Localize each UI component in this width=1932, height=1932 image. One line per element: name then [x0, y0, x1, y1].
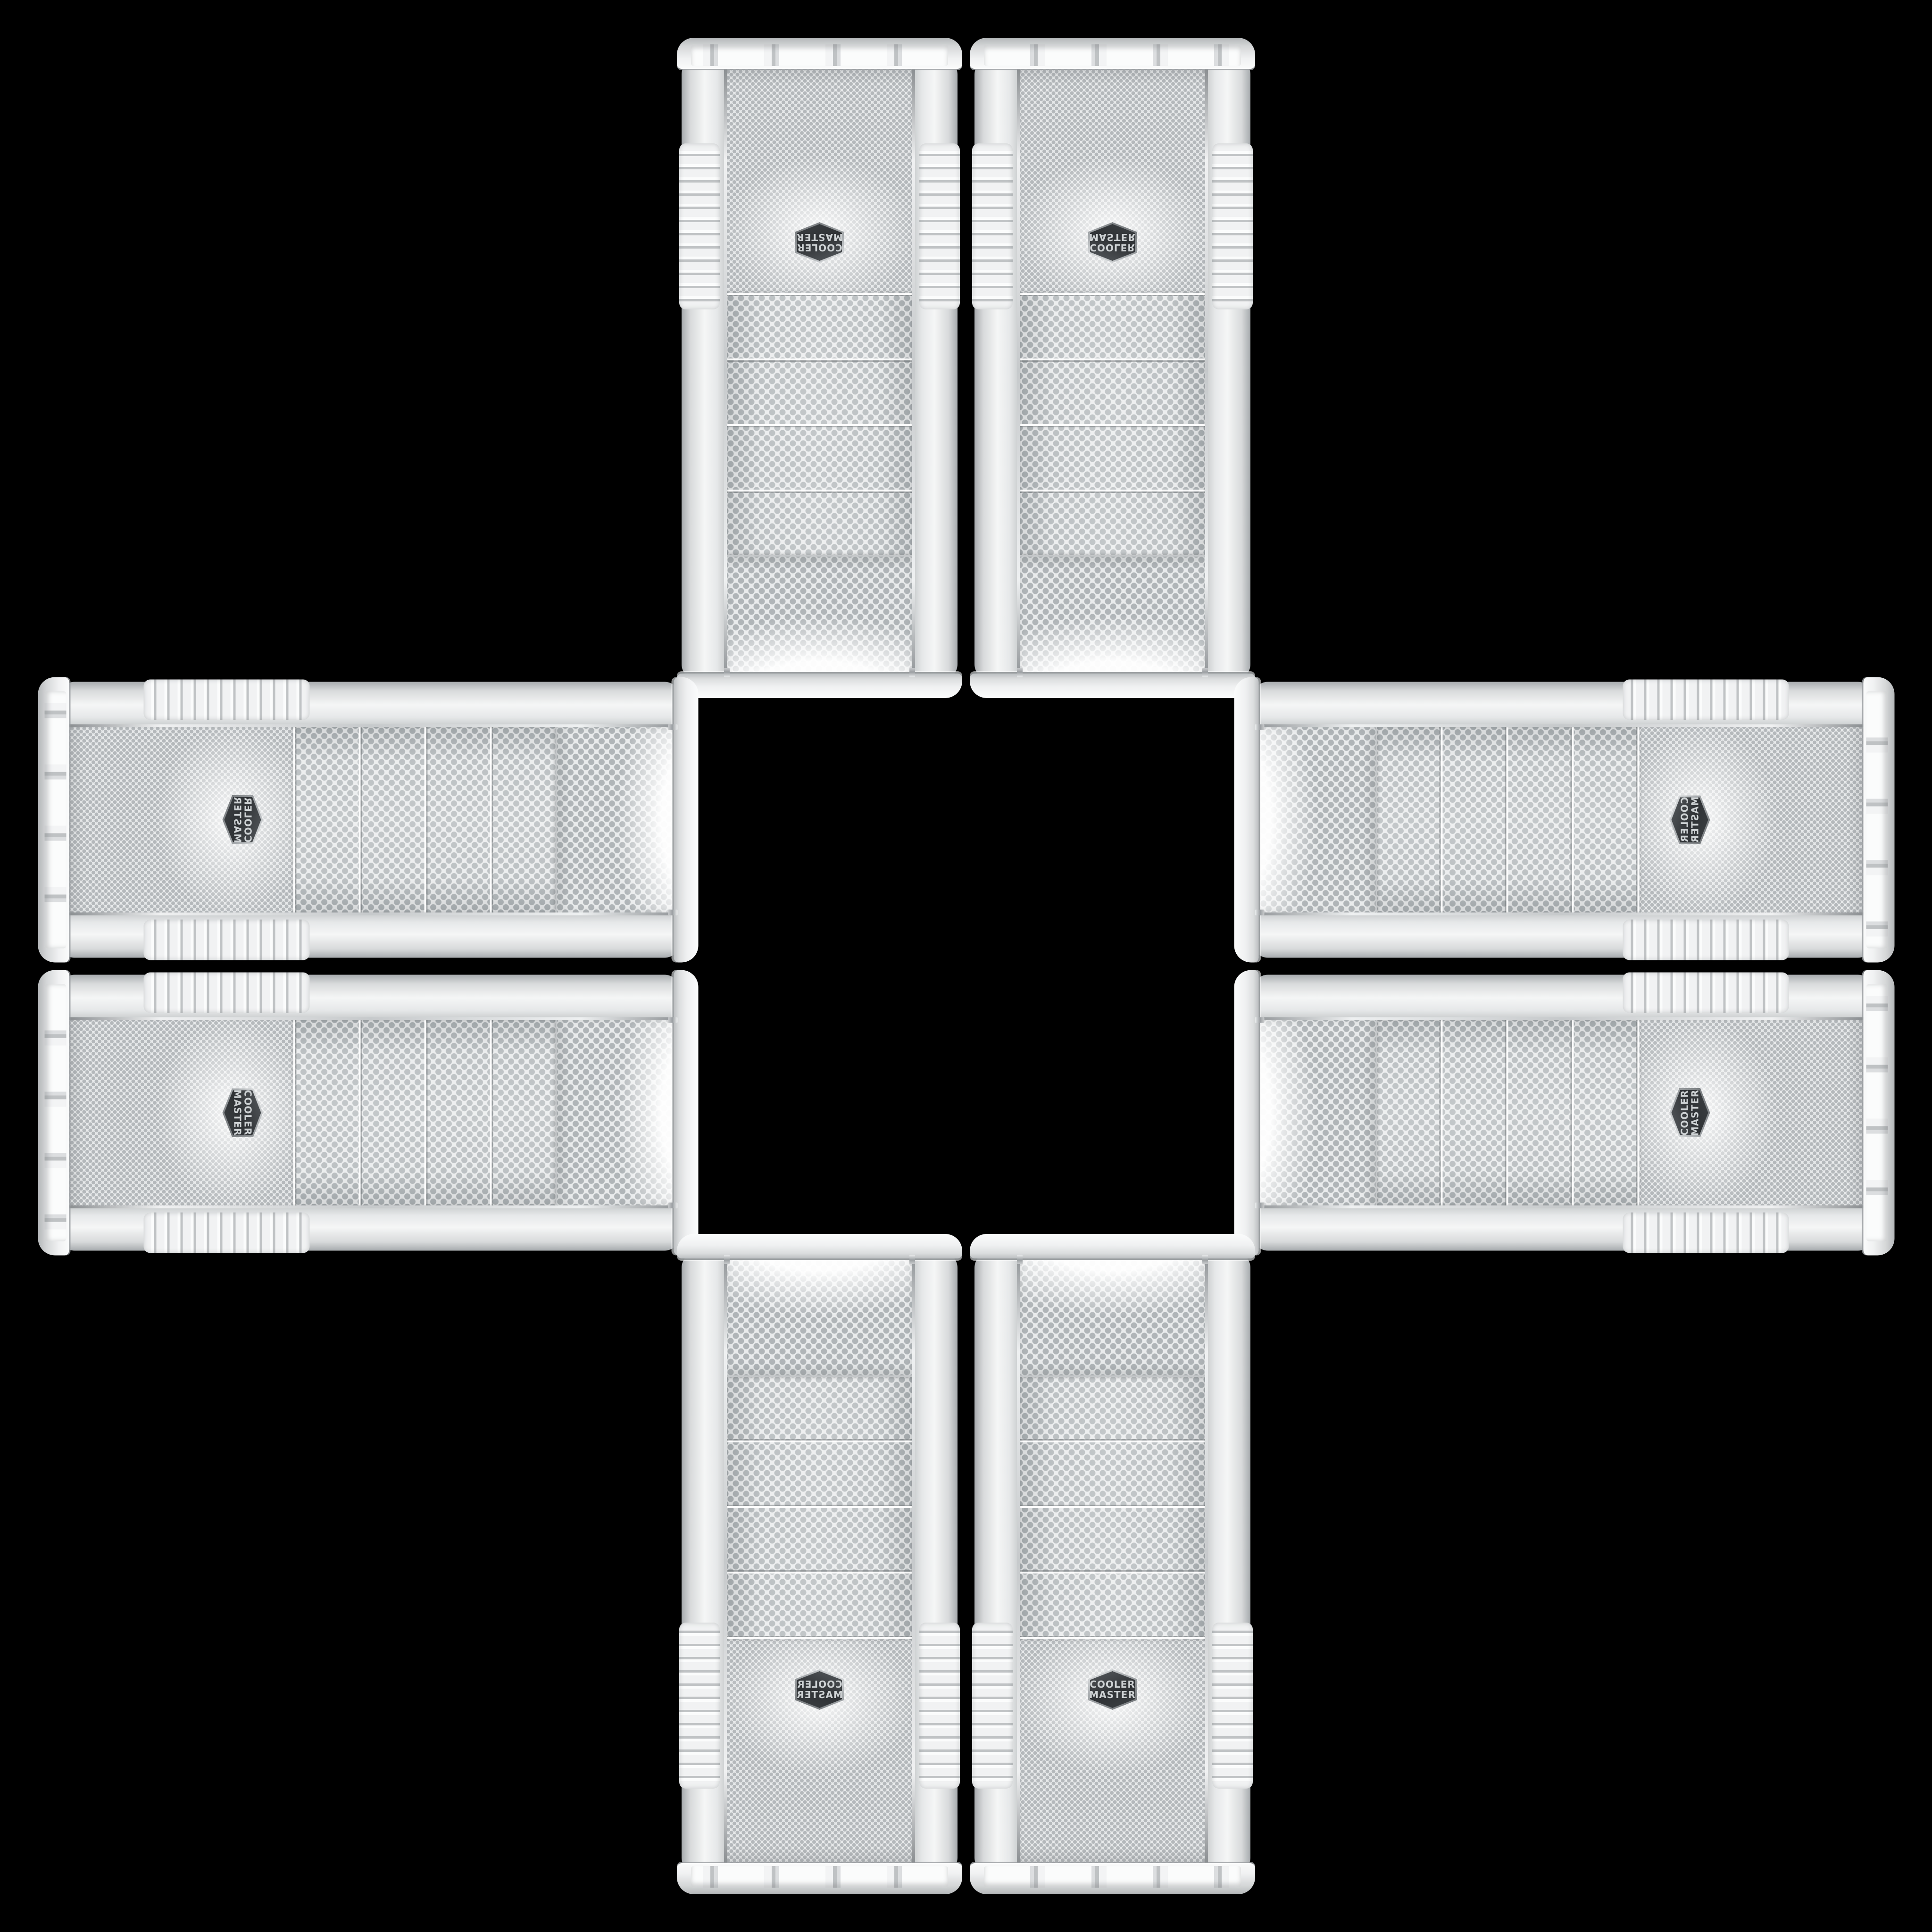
- case-grip-ribs-left: [1623, 679, 1789, 720]
- chrome-hook-right-icon: [668, 724, 677, 730]
- chrome-hook-right-icon: [724, 1255, 730, 1264]
- brand-text-line2: MASTER: [796, 1690, 843, 1700]
- drive-bay-covers: [1377, 727, 1640, 912]
- bottom-cap-segments: [1866, 984, 1888, 1241]
- case-bottom-left: COOLER MASTER: [682, 1234, 958, 1894]
- case-front-panel: COOLER MASTER: [1020, 61, 1205, 679]
- bottom-cap-segments: [44, 691, 66, 948]
- brand-text-line2: MASTER: [233, 1089, 242, 1136]
- brand-text-line2: MASTER: [1089, 1690, 1136, 1700]
- chrome-hook-right-icon: [1202, 1255, 1208, 1264]
- cooler-master-logo-badge: COOLER MASTER: [1669, 1088, 1710, 1137]
- front-mesh-dome: [555, 727, 679, 912]
- case-top-cap: [677, 674, 962, 698]
- case-front-panel: COOLER MASTER: [727, 1253, 912, 1871]
- cooler-master-logo-face: COOLER MASTER: [224, 1090, 261, 1135]
- case-top-left: COOLER MASTER: [682, 38, 958, 698]
- case-grip-ribs-right: [1623, 919, 1789, 960]
- drive-bay-covers: [727, 292, 912, 555]
- case-grip-ribs-right: [1212, 1623, 1253, 1789]
- brand-text-line1: COOLER: [1680, 797, 1690, 842]
- case-top-cap: [674, 677, 698, 962]
- chrome-hook-right-icon: [1202, 668, 1208, 677]
- case-grip-ribs-left: [1623, 1212, 1789, 1253]
- case-top-cap: [677, 1234, 962, 1258]
- drive-bay-covers: [292, 1020, 555, 1205]
- drive-bay-covers: [727, 1377, 912, 1640]
- brand-text-line2: MASTER: [796, 233, 843, 242]
- case-grip-ribs-left: [972, 1623, 1013, 1789]
- brand-text-line1: COOLER: [1090, 243, 1135, 253]
- case-front-panel: COOLER MASTER: [1253, 1020, 1871, 1205]
- case-bottom-cap: [677, 1863, 962, 1894]
- front-mesh-dome: [1253, 1020, 1377, 1205]
- case-bottom-cap: [970, 38, 1255, 69]
- brand-text-line2: MASTER: [1690, 796, 1700, 843]
- case-grip-ribs-left: [972, 143, 1013, 309]
- cooler-master-logo-face: COOLER MASTER: [1671, 797, 1708, 842]
- case-grip-ribs-left: [143, 972, 309, 1013]
- case-front-panel: COOLER MASTER: [61, 1020, 679, 1205]
- cooler-master-logo-badge: COOLER MASTER: [1669, 795, 1710, 844]
- case-top-cap: [1234, 970, 1258, 1255]
- brand-text-line2: MASTER: [233, 796, 242, 843]
- case-bottom-cap: [1863, 970, 1894, 1255]
- chrome-hook-left-icon: [1017, 668, 1023, 677]
- case-collage: COOLER MASTER COOLER M: [0, 0, 1932, 1932]
- case-left-top: COOLER MASTER: [38, 682, 698, 958]
- chrome-hook-left-icon: [668, 1017, 677, 1023]
- case-right-top: COOLER MASTER: [1234, 682, 1894, 958]
- bottom-cap-segments: [691, 1866, 948, 1888]
- case-grip-ribs-right: [679, 1623, 720, 1789]
- chrome-hook-left-icon: [1017, 1255, 1023, 1264]
- case-grip-ribs-right: [1212, 143, 1253, 309]
- case-bottom-cap: [970, 1863, 1255, 1894]
- cooler-master-logo-badge: COOLER MASTER: [795, 1669, 844, 1710]
- brand-text-line1: COOLER: [243, 797, 253, 842]
- chrome-hook-right-icon: [668, 1202, 677, 1208]
- front-mesh-dome: [555, 1020, 679, 1205]
- case-top-cap: [970, 674, 1255, 698]
- front-mesh-intake: COOLER MASTER: [727, 1640, 912, 1871]
- case-grip-ribs-left: [919, 1623, 960, 1789]
- chrome-hook-right-icon: [1255, 1017, 1264, 1023]
- case-grip-ribs-right: [143, 1212, 309, 1253]
- case-right-bottom: COOLER MASTER: [1234, 974, 1894, 1250]
- chrome-hook-left-icon: [909, 1255, 915, 1264]
- brand-text-line1: COOLER: [1680, 1090, 1690, 1135]
- brand-text-line1: COOLER: [797, 243, 842, 253]
- bottom-cap-segments: [984, 1866, 1241, 1888]
- drive-bay-covers: [1377, 1020, 1640, 1205]
- drive-bay-covers: [292, 727, 555, 912]
- cooler-master-logo-badge: COOLER MASTER: [1088, 1669, 1137, 1710]
- case-top-cap: [674, 970, 698, 1255]
- case-grip-ribs-right: [679, 143, 720, 309]
- chrome-hook-right-icon: [724, 668, 730, 677]
- chrome-hook-left-icon: [1255, 724, 1264, 730]
- bottom-cap-segments: [691, 44, 948, 66]
- case-front-panel: COOLER MASTER: [61, 727, 679, 912]
- brand-text-line2: MASTER: [1089, 233, 1136, 242]
- cooler-master-logo-badge: COOLER MASTER: [222, 795, 263, 844]
- front-mesh-dome: [1020, 555, 1205, 679]
- front-mesh-intake: COOLER MASTER: [61, 1020, 292, 1205]
- cooler-master-logo-badge: COOLER MASTER: [795, 222, 844, 263]
- case-bottom-cap: [38, 677, 69, 962]
- case-bottom-right: COOLER MASTER: [974, 1234, 1250, 1894]
- case-bottom-cap: [677, 38, 962, 69]
- case-front-panel: COOLER MASTER: [727, 61, 912, 679]
- case-top-right: COOLER MASTER: [974, 38, 1250, 698]
- front-mesh-intake: COOLER MASTER: [1020, 61, 1205, 292]
- case-bottom-cap: [1863, 677, 1894, 962]
- case-front-panel: COOLER MASTER: [1020, 1253, 1205, 1871]
- cooler-master-logo-face: COOLER MASTER: [1671, 1090, 1708, 1135]
- cooler-master-logo-face: COOLER MASTER: [797, 1671, 842, 1708]
- case-front-panel: COOLER MASTER: [1253, 727, 1871, 912]
- front-mesh-dome: [727, 1253, 912, 1377]
- front-mesh-intake: COOLER MASTER: [727, 61, 912, 292]
- cooler-master-logo-badge: COOLER MASTER: [1088, 222, 1137, 263]
- cooler-master-logo-face: COOLER MASTER: [1090, 224, 1135, 261]
- chrome-hook-right-icon: [1255, 909, 1264, 915]
- case-top-cap: [1234, 677, 1258, 962]
- front-mesh-intake: COOLER MASTER: [1640, 727, 1871, 912]
- brand-text-line1: COOLER: [243, 1090, 253, 1135]
- chrome-hook-left-icon: [668, 909, 677, 915]
- cooler-master-logo-face: COOLER MASTER: [1090, 1671, 1135, 1708]
- case-left-bottom: COOLER MASTER: [38, 974, 698, 1250]
- case-grip-ribs-left: [143, 919, 309, 960]
- bottom-cap-segments: [44, 984, 66, 1241]
- bottom-cap-segments: [984, 44, 1241, 66]
- front-mesh-intake: COOLER MASTER: [1640, 1020, 1871, 1205]
- case-grip-ribs-right: [143, 679, 309, 720]
- front-mesh-intake: COOLER MASTER: [61, 727, 292, 912]
- chrome-hook-left-icon: [1255, 1202, 1264, 1208]
- cooler-master-logo-face: COOLER MASTER: [224, 797, 261, 842]
- front-mesh-dome: [1020, 1253, 1205, 1377]
- case-top-cap: [970, 1234, 1255, 1258]
- chrome-hook-left-icon: [909, 668, 915, 677]
- brand-text-line1: COOLER: [797, 1680, 842, 1690]
- case-grip-ribs-left: [919, 143, 960, 309]
- cooler-master-logo-badge: COOLER MASTER: [222, 1088, 263, 1137]
- bottom-cap-segments: [1866, 691, 1888, 948]
- brand-text-line1: COOLER: [1090, 1680, 1135, 1690]
- cooler-master-logo-face: COOLER MASTER: [797, 224, 842, 261]
- case-grip-ribs-right: [1623, 972, 1789, 1013]
- front-mesh-dome: [727, 555, 912, 679]
- case-bottom-cap: [38, 970, 69, 1255]
- drive-bay-covers: [1020, 1377, 1205, 1640]
- brand-text-line2: MASTER: [1690, 1089, 1700, 1136]
- drive-bay-covers: [1020, 292, 1205, 555]
- front-mesh-intake: COOLER MASTER: [1020, 1640, 1205, 1871]
- front-mesh-dome: [1253, 727, 1377, 912]
